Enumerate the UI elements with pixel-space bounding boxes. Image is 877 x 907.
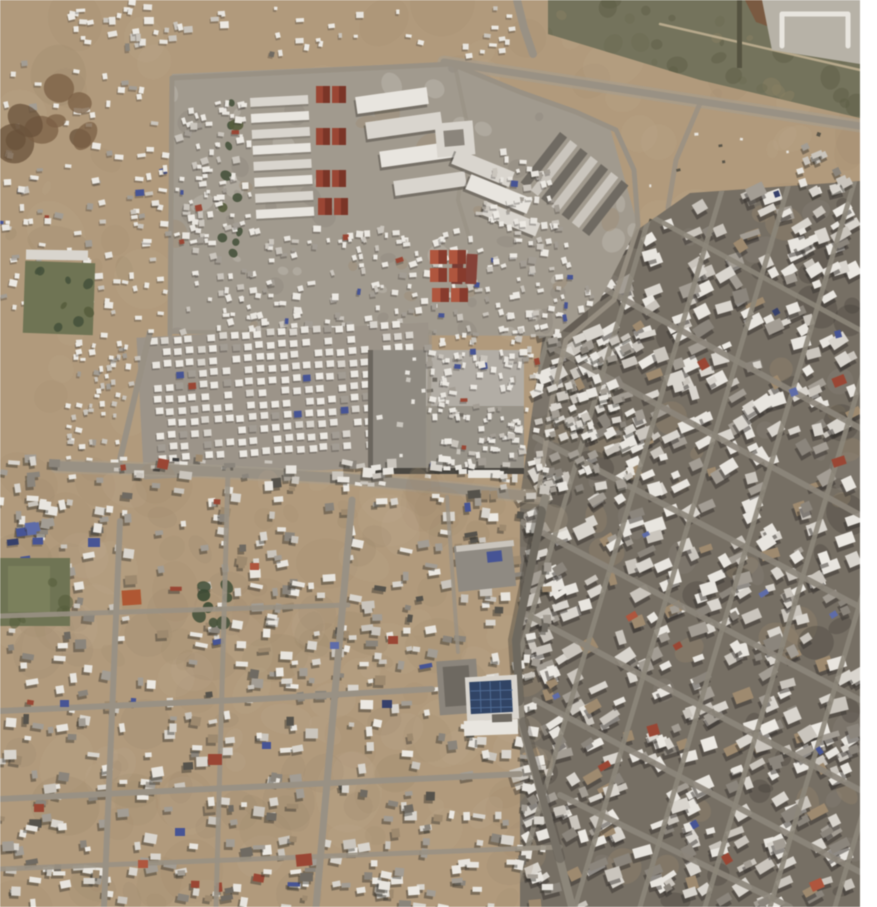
- orchard-building: [26, 249, 88, 260]
- screenshot: [0, 0, 877, 907]
- satellite-image: [0, 0, 877, 907]
- boundary-wall: [737, 0, 742, 68]
- scene: [0, 0, 877, 907]
- red-rows-south: [430, 250, 468, 302]
- right-margin: [860, 0, 877, 907]
- grey-hall: [454, 540, 516, 592]
